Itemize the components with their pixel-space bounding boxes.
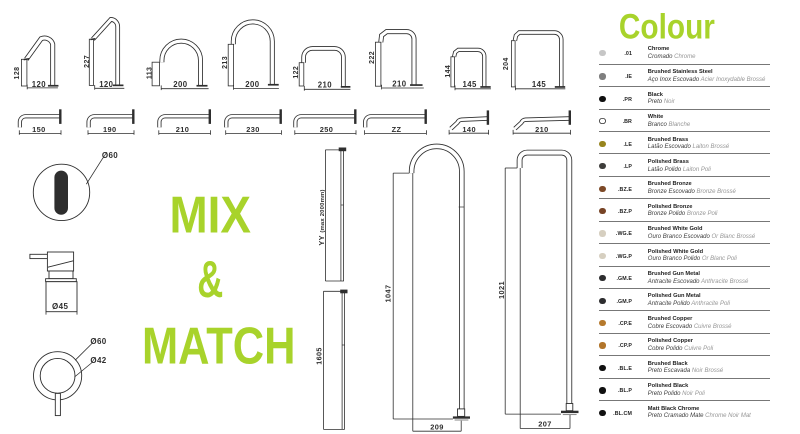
svg-text:MATCH: MATCH bbox=[142, 318, 296, 376]
svg-text:MIX: MIX bbox=[170, 187, 252, 245]
svg-text:&: & bbox=[197, 251, 223, 309]
